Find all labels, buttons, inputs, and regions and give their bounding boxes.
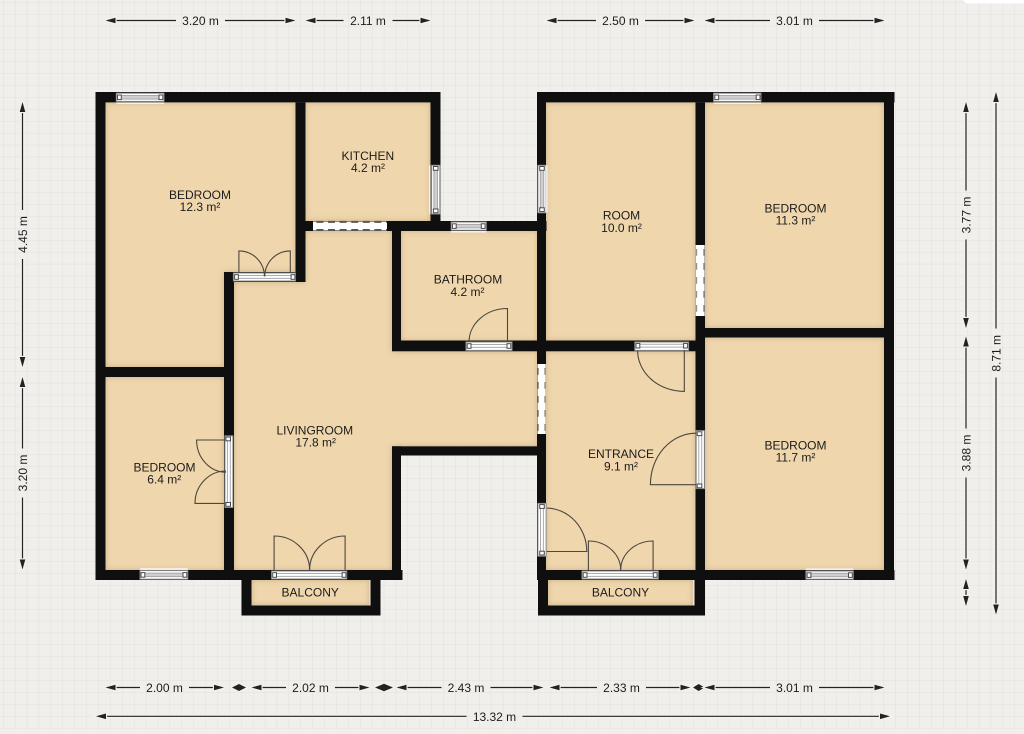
svg-text:3.88 m: 3.88 m (959, 435, 973, 472)
svg-text:6.4 m²: 6.4 m² (147, 473, 181, 487)
svg-text:11.7 m²: 11.7 m² (776, 451, 816, 465)
svg-text:2.33 m: 2.33 m (603, 681, 640, 695)
svg-text:4.2 m²: 4.2 m² (450, 285, 484, 299)
svg-text:3.20 m: 3.20 m (16, 455, 30, 492)
svg-text:3.01 m: 3.01 m (776, 14, 813, 28)
svg-text:12.3 m²: 12.3 m² (180, 200, 221, 214)
svg-text:2.43 m: 2.43 m (448, 681, 485, 695)
svg-text:2.00 m: 2.00 m (146, 681, 183, 695)
svg-text:BALCONY: BALCONY (282, 586, 339, 600)
svg-text:3.01 m: 3.01 m (776, 681, 813, 695)
svg-text:13.32 m: 13.32 m (473, 710, 516, 724)
svg-text:4.45 m: 4.45 m (16, 216, 30, 253)
svg-text:2.50 m: 2.50 m (602, 14, 639, 28)
svg-text:3.77 m: 3.77 m (959, 197, 973, 234)
svg-text:4.2 m²: 4.2 m² (351, 161, 385, 175)
svg-text:9.1 m²: 9.1 m² (604, 459, 638, 473)
svg-text:3.20 m: 3.20 m (182, 14, 219, 28)
svg-text:BALCONY: BALCONY (592, 586, 649, 600)
svg-text:8.71 m: 8.71 m (989, 335, 1003, 372)
svg-text:11.3 m²: 11.3 m² (776, 214, 816, 228)
svg-text:2.02 m: 2.02 m (292, 681, 329, 695)
svg-text:17.8 m²: 17.8 m² (295, 436, 336, 450)
svg-text:10.0 m²: 10.0 m² (601, 221, 642, 235)
svg-text:2.11 m: 2.11 m (350, 14, 386, 28)
